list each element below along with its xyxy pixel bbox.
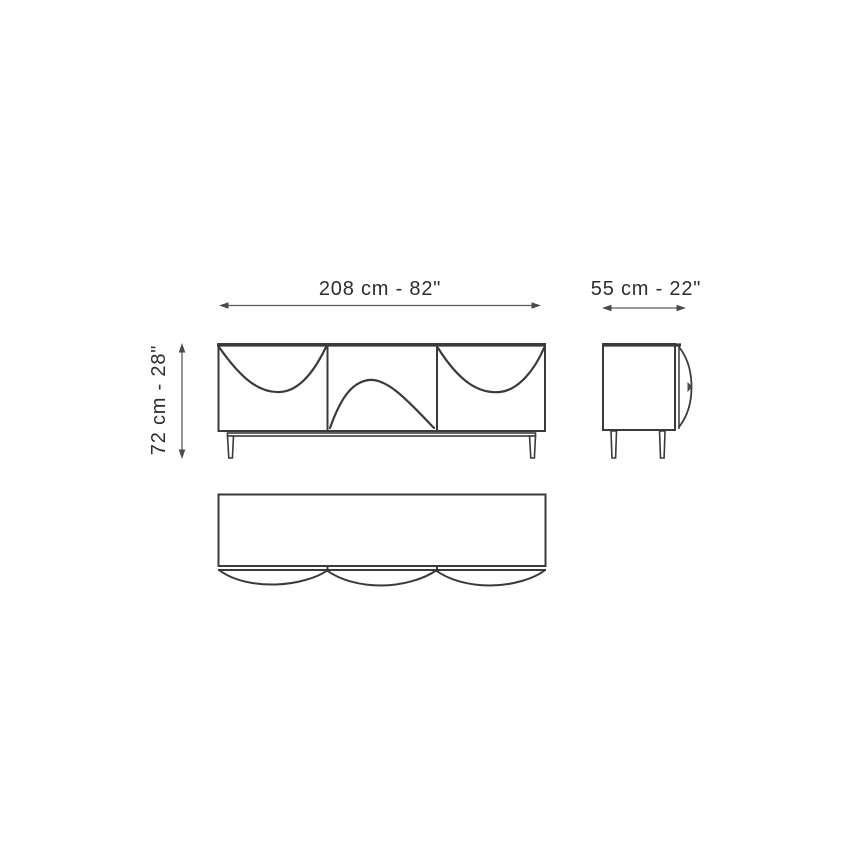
depth-dim-arrowhead-left — [602, 305, 612, 312]
height-dimension-label: 72 cm - 28" — [147, 340, 169, 460]
dimension-diagram: 208 cm - 82" 55 cm - 22" 72 cm - 28" — [0, 0, 860, 860]
front-base-rail — [228, 433, 536, 436]
width-dim-arrowhead-left — [219, 302, 229, 309]
depth-dimension-label: 55 cm - 22" — [586, 277, 706, 301]
height-dimension — [179, 343, 186, 459]
depth-dimension — [602, 305, 686, 312]
front-leg-left — [228, 436, 234, 458]
width-dimension-label: 208 cm - 82" — [219, 277, 541, 301]
depth-dim-arrowhead-right — [677, 305, 687, 312]
top-door-wave-middle — [327, 571, 436, 586]
width-dim-arrowhead-right — [532, 302, 542, 309]
side-leg-front — [611, 431, 617, 458]
front-leg-right — [530, 436, 536, 458]
side-body-outline — [603, 344, 675, 430]
front-body-outline — [219, 344, 546, 431]
top-door-wave-right — [436, 570, 545, 586]
top-body-outline — [219, 495, 546, 567]
height-dim-arrowhead-top — [179, 343, 186, 353]
height-dim-arrowhead-bottom — [179, 450, 186, 460]
side-leg-back — [660, 431, 666, 458]
width-dimension — [219, 302, 541, 309]
top-door-wave-left — [219, 570, 327, 585]
front-view — [217, 344, 546, 458]
drawing-canvas — [0, 0, 860, 860]
side-view — [602, 344, 693, 458]
top-view — [218, 495, 546, 586]
